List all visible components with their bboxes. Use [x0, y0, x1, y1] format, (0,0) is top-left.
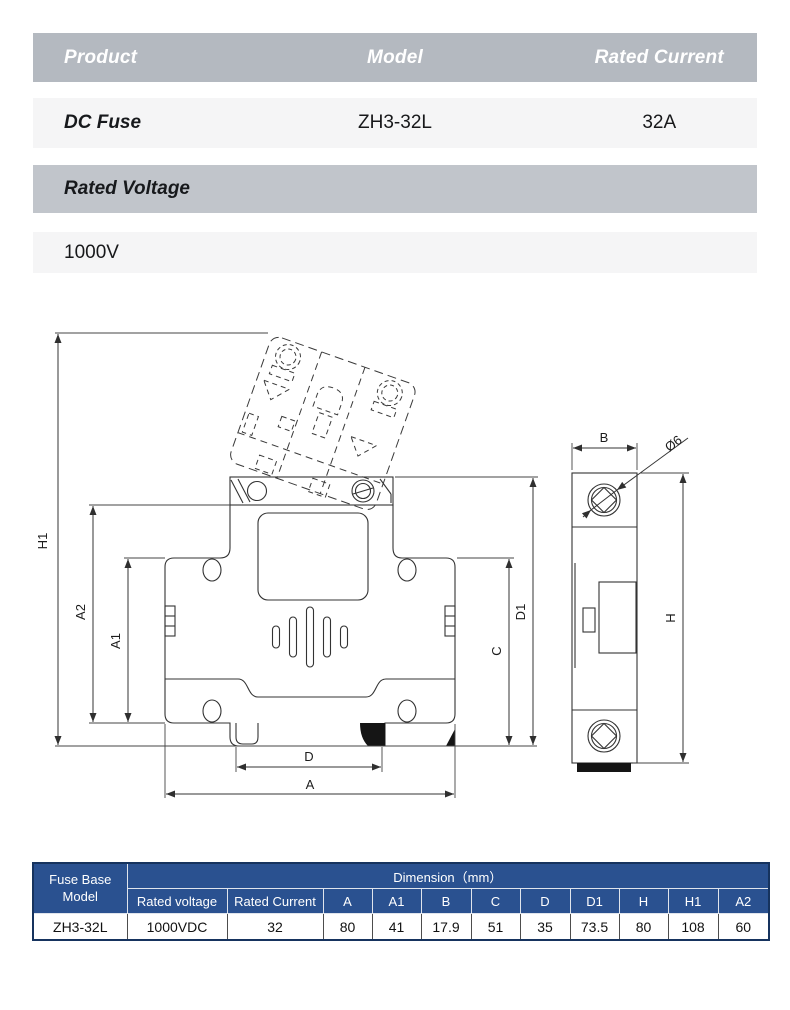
col-header-a2: A2 [718, 889, 769, 914]
model-column-header: Model [367, 33, 423, 82]
cell-a: 80 [323, 914, 372, 941]
rated-voltage-value-row: 1000V [33, 232, 757, 273]
col-header-c: C [471, 889, 520, 914]
dim-label-a1: A1 [108, 633, 123, 649]
cell-a2: 60 [718, 914, 769, 941]
cell-rated-current: 32 [227, 914, 323, 941]
din-rail-bracket [230, 477, 393, 505]
dim-label-diameter: Ø6 [662, 432, 685, 454]
col-header-rated-voltage: Rated voltage [127, 889, 227, 914]
rated-voltage-value: 1000V [64, 232, 119, 273]
col-header-b: B [421, 889, 471, 914]
col-header-a: A [323, 889, 372, 914]
cell-h: 80 [619, 914, 668, 941]
fuse-base-model-header: Fuse Base Model [33, 863, 127, 914]
dim-label-h: H [663, 613, 678, 622]
rated-voltage-header-row: Rated Voltage [33, 165, 757, 213]
col-header-h1: H1 [668, 889, 718, 914]
dim-label-b: B [600, 430, 609, 445]
dim-label-c: C [489, 646, 504, 655]
cell-h1: 108 [668, 914, 718, 941]
cell-model: ZH3-32L [33, 914, 127, 941]
front-view [165, 505, 455, 746]
dim-label-a: A [306, 777, 315, 792]
rated-voltage-header: Rated Voltage [64, 165, 190, 213]
dim-label-d: D [304, 749, 313, 764]
page: { "spec_table": { "headers": { "product"… [0, 0, 790, 1010]
dimension-table: Fuse Base Model Dimension（mm） Rated volt… [32, 862, 770, 941]
model-value: ZH3-32L [358, 98, 432, 148]
cell-rated-voltage: 1000VDC [127, 914, 227, 941]
tilted-fuse-dashed-outline [227, 335, 418, 515]
cell-c: 51 [471, 914, 520, 941]
col-header-rated-current: Rated Current [227, 889, 323, 914]
cell-a1: 41 [372, 914, 421, 941]
dimension-drawing: H1 A2 A1 D A C D1 B Ø6 H [0, 300, 790, 810]
spec-value-row: DC Fuse ZH3-32L 32A [33, 98, 757, 148]
col-header-d1: D1 [570, 889, 619, 914]
cell-d1: 73.5 [570, 914, 619, 941]
dim-label-d1: D1 [513, 604, 528, 621]
dimension-value-row: ZH3-32L 1000VDC 32 80 41 17.9 51 35 73.5… [33, 914, 769, 941]
side-view [572, 473, 637, 772]
col-header-d: D [520, 889, 570, 914]
product-column-header: Product [64, 33, 137, 82]
dimension-subheader-row: Rated voltage Rated Current A A1 B C D D… [33, 889, 769, 914]
cell-b: 17.9 [421, 914, 471, 941]
col-header-a1: A1 [372, 889, 421, 914]
rated-current-value: 32A [642, 98, 676, 148]
cell-d: 35 [520, 914, 570, 941]
product-value: DC Fuse [64, 98, 141, 148]
rated-current-column-header: Rated Current [595, 33, 724, 82]
dim-label-a2: A2 [73, 604, 88, 620]
dimension-group-header-row: Fuse Base Model Dimension（mm） [33, 863, 769, 889]
dim-label-h1: H1 [35, 533, 50, 550]
dimension-group-header: Dimension（mm） [127, 863, 769, 889]
col-header-h: H [619, 889, 668, 914]
spec-header-row: Product Model Rated Current [33, 33, 757, 82]
